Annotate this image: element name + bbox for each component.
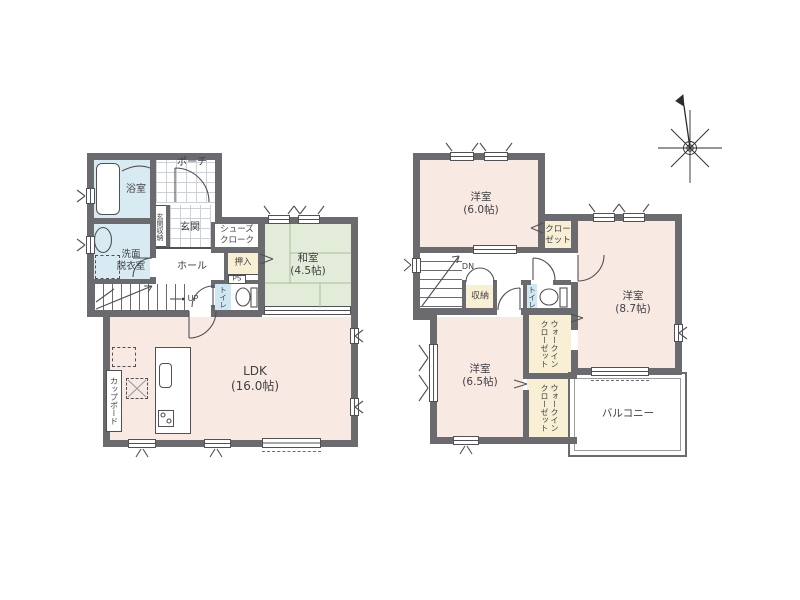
wall xyxy=(258,217,265,315)
label-closet-2f: クローゼット xyxy=(545,224,571,245)
sliding-door-bedroom60 xyxy=(473,245,517,254)
label-oshiire: 押入 xyxy=(234,258,251,269)
path xyxy=(658,110,722,183)
label-toilet2: トイレ xyxy=(527,286,538,309)
window xyxy=(484,152,508,161)
path xyxy=(77,190,85,251)
span: 洗面 xyxy=(117,249,146,261)
label-stairs-down: DN xyxy=(462,262,474,272)
wall xyxy=(571,282,578,330)
window xyxy=(86,188,95,204)
wall xyxy=(493,285,497,308)
span: (6.0帖) xyxy=(463,204,498,217)
window xyxy=(350,398,359,416)
span: 洋室 xyxy=(463,191,498,204)
ln xyxy=(680,378,681,451)
span: シューズ xyxy=(220,224,254,235)
circle xyxy=(687,145,693,151)
window xyxy=(298,215,320,224)
window xyxy=(429,344,438,402)
label-entrance: 玄関 xyxy=(180,222,200,235)
rect xyxy=(251,288,257,307)
wall xyxy=(413,153,420,320)
compass-icon xyxy=(658,95,722,183)
wall xyxy=(166,205,170,249)
refrigerator-space xyxy=(112,347,136,367)
wall xyxy=(215,153,222,224)
span: クロー xyxy=(545,224,571,235)
wall xyxy=(87,218,153,224)
span: ウォークイン xyxy=(549,384,559,432)
path xyxy=(300,206,324,214)
circle xyxy=(684,142,697,155)
kitchen-sink xyxy=(159,363,172,388)
label-bedroom-60: 洋室(6.0帖) xyxy=(463,191,498,217)
sliding-window xyxy=(262,438,321,448)
window xyxy=(453,436,479,445)
window xyxy=(204,439,231,448)
wall xyxy=(150,277,156,284)
ln xyxy=(574,378,681,379)
span: クローゼット xyxy=(539,384,549,432)
sliding-window-balcony xyxy=(591,367,649,376)
label-hall: ホール xyxy=(177,261,207,274)
window xyxy=(450,152,474,161)
label-balcony: バルコニー xyxy=(602,407,654,420)
label-wic-lower: ウォークインクローゼット xyxy=(539,384,559,432)
label-entrance-storage: 玄関収納 xyxy=(155,213,165,241)
span: 洋室 xyxy=(462,363,497,376)
rect xyxy=(560,288,567,307)
span: クローゼット xyxy=(539,320,549,368)
stairs-2f xyxy=(420,252,462,308)
path xyxy=(460,446,472,454)
floor-plan: ポーチ 浴室 玄関収納 玄関 シューズクローク 洗面脱衣室 ホール 押入 PS … xyxy=(0,0,800,600)
span: 脱衣室 xyxy=(117,261,146,273)
window xyxy=(623,213,645,222)
label-ldk: LDK(16.0帖) xyxy=(231,364,279,394)
wall xyxy=(553,280,571,285)
wall xyxy=(675,214,682,375)
wall xyxy=(517,247,545,253)
label-bedroom-87: 洋室(8.7帖) xyxy=(615,290,650,316)
label-porch: ポーチ xyxy=(177,157,207,170)
wall xyxy=(150,253,156,258)
window xyxy=(412,258,421,273)
stairs-1f xyxy=(94,284,185,310)
label-bedroom-65: 洋室(6.5帖) xyxy=(462,363,497,389)
toilet2-icon xyxy=(540,289,558,305)
ln xyxy=(574,450,681,451)
bathtub xyxy=(96,163,120,215)
path xyxy=(264,206,300,214)
span: (16.0帖) xyxy=(231,379,279,394)
path xyxy=(676,95,684,106)
wall xyxy=(211,310,262,317)
label-shoes-cloak: シューズクローク xyxy=(220,224,254,245)
wall xyxy=(462,285,466,308)
window xyxy=(350,328,359,344)
sliding-door-washitsu xyxy=(264,306,351,315)
span: ゼット xyxy=(545,235,571,246)
pantry-space xyxy=(126,378,148,399)
span: 洋室 xyxy=(615,290,650,303)
toilet1-icon xyxy=(236,288,250,306)
wall xyxy=(538,153,545,253)
wall xyxy=(109,310,189,317)
path xyxy=(419,345,428,401)
dash xyxy=(591,380,649,382)
ln xyxy=(156,247,211,249)
path xyxy=(589,204,649,212)
wall xyxy=(413,153,545,160)
wall xyxy=(649,368,682,375)
kitchen-stove xyxy=(158,410,174,427)
label-bathroom: 浴室 xyxy=(126,184,146,197)
span: 和室 xyxy=(290,252,325,265)
label-washroom: 洗面脱衣室 xyxy=(117,249,146,273)
wall xyxy=(87,153,94,317)
window xyxy=(674,324,683,342)
wall xyxy=(523,390,529,444)
wall xyxy=(545,248,578,253)
label-japanese-room: 和室(4.5帖) xyxy=(290,252,325,278)
label-storage-2f: 収納 xyxy=(471,291,489,302)
span: ウォークイン xyxy=(549,320,559,368)
span: (4.5帖) xyxy=(290,265,325,278)
label-toilet1: トイレ xyxy=(218,286,229,309)
span: LDK xyxy=(231,364,279,379)
label-pipe-space: PS xyxy=(233,275,242,284)
span: クローク xyxy=(220,235,254,246)
wall xyxy=(571,350,578,375)
label-wic-upper: ウォークインクローゼット xyxy=(539,320,559,368)
window xyxy=(268,215,290,224)
label-cupboard: カップボード xyxy=(109,377,120,425)
span: (8.7帖) xyxy=(615,303,650,316)
span: (6.5帖) xyxy=(462,376,497,389)
wall xyxy=(211,284,215,288)
wall xyxy=(523,313,529,378)
window xyxy=(593,213,615,222)
dash xyxy=(262,451,321,453)
path xyxy=(446,143,512,151)
window xyxy=(128,439,156,448)
door-arc-bedroom65 xyxy=(498,288,520,310)
path xyxy=(136,449,222,457)
path xyxy=(684,106,690,148)
window xyxy=(86,236,95,254)
wall xyxy=(523,373,577,379)
label-stairs-up: UP xyxy=(188,294,199,304)
wall xyxy=(211,247,262,253)
door-arc-toilet2 xyxy=(533,258,555,280)
